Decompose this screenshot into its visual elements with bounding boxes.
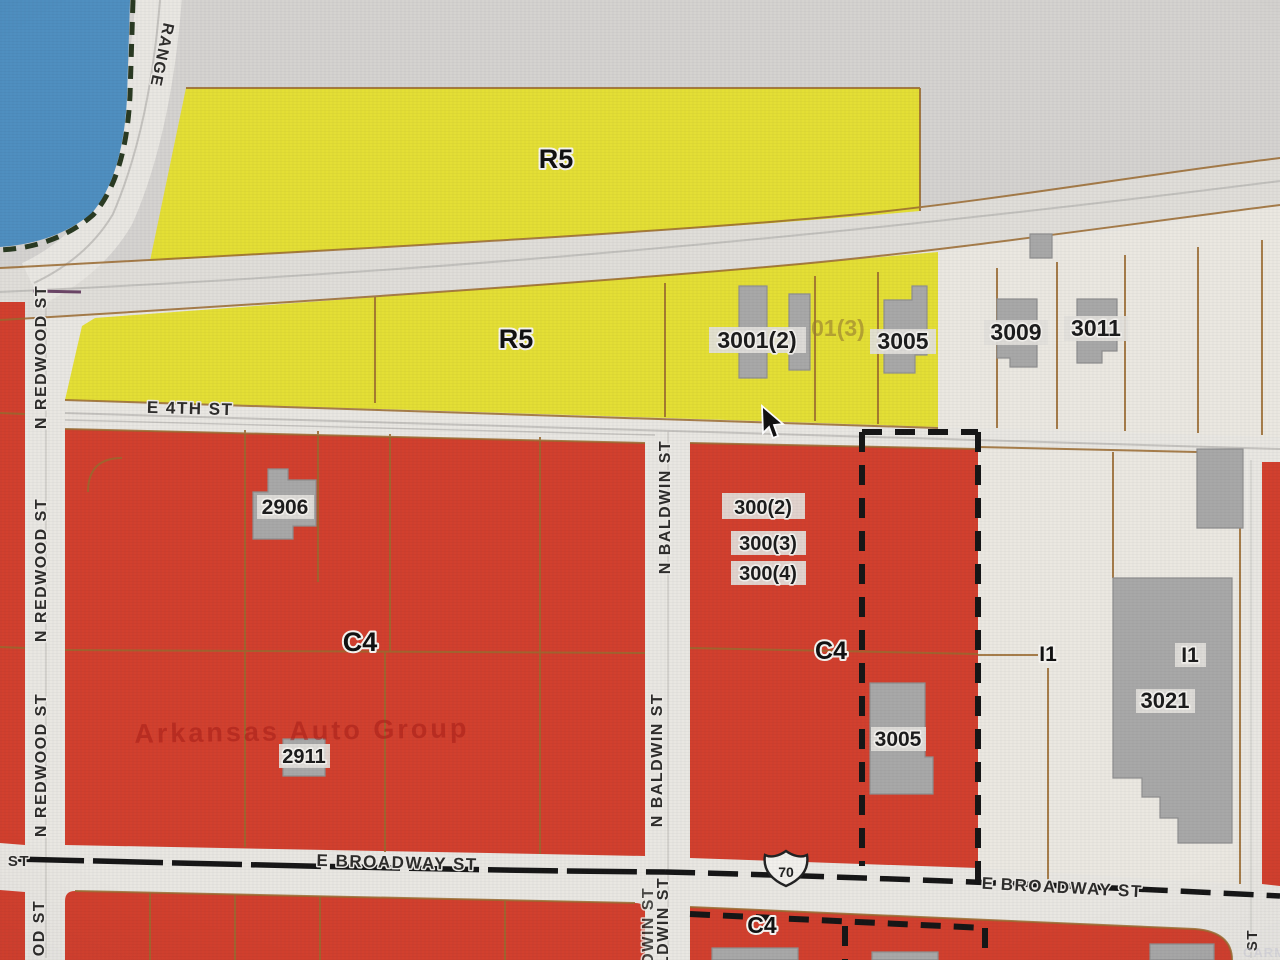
zone-c4-west-sliver[interactable] bbox=[0, 302, 25, 845]
zone-label-c4-east: C4 bbox=[815, 637, 847, 665]
street-label-n-redwood-2: N REDWOOD ST bbox=[33, 498, 50, 642]
mls-watermark: CARMLS bbox=[1243, 945, 1280, 960]
street-label-n-redwood-1: N REDWOOD ST bbox=[33, 285, 50, 429]
building-south-c bbox=[1150, 944, 1214, 960]
zone-c4-west-sliver-south[interactable] bbox=[0, 890, 25, 960]
zone-label-c4-west: C4 bbox=[343, 627, 378, 657]
zone-label-i1-west: I1 bbox=[1039, 643, 1057, 666]
parcel-label-3011[interactable]: 3011 bbox=[1071, 315, 1121, 341]
parcel-label-300-3[interactable]: 300(3) bbox=[739, 533, 797, 555]
parcel-label-3001-3[interactable]: 01(3) bbox=[811, 315, 865, 341]
building-south-a bbox=[712, 948, 798, 960]
parcel-label-2906[interactable]: 2906 bbox=[262, 496, 309, 519]
zone-c4-east-strip[interactable] bbox=[1262, 462, 1280, 886]
building-ne-warehouse bbox=[1197, 449, 1243, 528]
zone-label-c4-south: C4 bbox=[747, 912, 777, 938]
zone-label-i1-building: I1 bbox=[1181, 644, 1199, 667]
parcel-label-300-2[interactable]: 300(2) bbox=[734, 497, 792, 519]
parcel-label-3021[interactable]: 3021 bbox=[1141, 688, 1190, 713]
parcel-label-3009[interactable]: 3009 bbox=[990, 319, 1041, 345]
parcel-label-2911[interactable]: 2911 bbox=[282, 746, 325, 768]
dealer-watermark: Arkansas Auto Group bbox=[134, 713, 470, 749]
street-label-n-baldwin-2: N BALDWIN ST bbox=[649, 693, 666, 827]
building-south-b bbox=[872, 952, 938, 960]
zone-label-r5-south: R5 bbox=[499, 324, 534, 354]
street-label-st-west: ST bbox=[8, 853, 30, 870]
highway-shield-number: 70 bbox=[778, 864, 794, 880]
street-label-e-4th-st: E 4TH ST bbox=[147, 398, 234, 419]
zone-label-r5-north: R5 bbox=[539, 144, 574, 174]
parcel-label-3005-north[interactable]: 3005 bbox=[877, 328, 928, 354]
parcel-label-3001-2[interactable]: 3001(2) bbox=[717, 327, 796, 353]
building-3009-shed bbox=[1030, 234, 1052, 258]
zoning-map-canvas[interactable]: R5 R5 C4 C4 C4 I1 3001(2) 01(3) 3005 300… bbox=[0, 0, 1280, 960]
parcel-label-300-4[interactable]: 300(4) bbox=[739, 563, 797, 585]
street-label-n-baldwin-4: N BALDWIN ST bbox=[640, 887, 657, 960]
street-label-n-redwood-3: N REDWOOD ST bbox=[33, 693, 50, 837]
street-label-n-redwood-clipped: OD ST bbox=[31, 900, 48, 956]
street-label-n-baldwin-3: N BALDWIN ST bbox=[655, 877, 672, 960]
parcel-label-3005-south[interactable]: 3005 bbox=[875, 728, 922, 751]
street-label-n-baldwin-1: N BALDWIN ST bbox=[657, 440, 674, 574]
zoning-map-photo: R5 R5 C4 C4 C4 I1 3001(2) 01(3) 3005 300… bbox=[0, 0, 1280, 960]
